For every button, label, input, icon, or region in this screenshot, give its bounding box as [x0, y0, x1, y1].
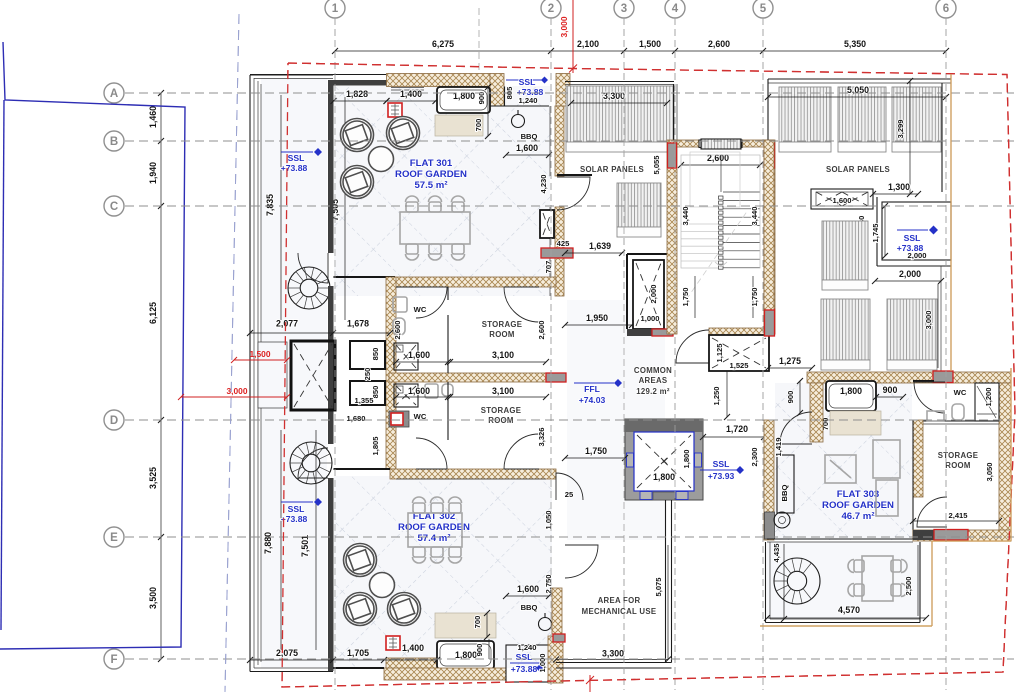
- svg-text:3,000: 3,000: [559, 16, 569, 37]
- svg-text:2,500: 2,500: [904, 576, 913, 595]
- svg-text:FLAT 303: FLAT 303: [837, 489, 879, 500]
- svg-text:+73.88: +73.88: [281, 514, 308, 524]
- svg-text:ROOF GARDEN: ROOF GARDEN: [398, 522, 470, 533]
- svg-text:2,077: 2,077: [276, 319, 298, 329]
- svg-text:1,940: 1,940: [148, 162, 158, 184]
- svg-text:SSL: SSL: [904, 233, 921, 243]
- svg-text:1,678: 1,678: [347, 319, 369, 329]
- svg-text:1,000: 1,000: [538, 653, 547, 672]
- svg-text:46.7 m²: 46.7 m²: [841, 511, 874, 522]
- svg-text:2,000: 2,000: [907, 251, 926, 260]
- svg-text:SSL: SSL: [519, 77, 536, 87]
- svg-text:425: 425: [557, 239, 570, 248]
- svg-text:850: 850: [371, 348, 380, 361]
- svg-text:D: D: [110, 415, 118, 427]
- svg-text:1,828: 1,828: [346, 89, 368, 99]
- svg-text:WC: WC: [954, 388, 967, 397]
- svg-text:1: 1: [332, 3, 339, 15]
- svg-text:707: 707: [544, 261, 553, 274]
- svg-text:BBQ: BBQ: [780, 484, 789, 501]
- svg-text:SOLAR PANELS: SOLAR PANELS: [826, 165, 890, 174]
- svg-text:COMMON: COMMON: [634, 366, 672, 375]
- svg-text:+73.88: +73.88: [511, 664, 538, 674]
- svg-text:1,400: 1,400: [400, 89, 422, 99]
- svg-text:2,075: 2,075: [276, 648, 298, 658]
- svg-text:1,419: 1,419: [774, 437, 783, 456]
- svg-text:3,000: 3,000: [924, 310, 933, 329]
- svg-text:1,750: 1,750: [681, 287, 690, 306]
- svg-text:6,125: 6,125: [148, 302, 158, 324]
- svg-text:AREA FOR: AREA FOR: [598, 596, 641, 605]
- svg-text:ROOF GARDEN: ROOF GARDEN: [395, 169, 467, 180]
- svg-text:5,075: 5,075: [654, 577, 663, 597]
- svg-text:3,050: 3,050: [985, 462, 994, 481]
- svg-text:5: 5: [760, 3, 767, 15]
- svg-text:3,500: 3,500: [148, 587, 158, 609]
- svg-text:SSL: SSL: [713, 459, 730, 469]
- svg-text:57.5 m²: 57.5 m²: [414, 180, 447, 191]
- svg-text:1,400: 1,400: [402, 643, 424, 653]
- svg-text:FFL: FFL: [584, 384, 600, 394]
- svg-text:ROOF GARDEN: ROOF GARDEN: [822, 500, 894, 511]
- svg-text:900: 900: [475, 644, 484, 657]
- svg-text:E: E: [110, 532, 118, 544]
- svg-text:1,250: 1,250: [712, 386, 721, 405]
- svg-text:7,501: 7,501: [300, 535, 310, 557]
- svg-text:3,326: 3,326: [537, 427, 546, 446]
- svg-text:ROOM: ROOM: [489, 330, 514, 339]
- svg-text:3,000: 3,000: [227, 386, 248, 396]
- svg-text:3,440: 3,440: [750, 206, 759, 225]
- svg-text:1,800: 1,800: [653, 472, 675, 482]
- svg-text:1,950: 1,950: [586, 313, 608, 323]
- svg-text:1,705: 1,705: [347, 648, 369, 658]
- svg-text:4,230: 4,230: [539, 174, 548, 193]
- svg-text:2,600: 2,600: [393, 320, 402, 339]
- svg-text:129.2 m²: 129.2 m²: [636, 387, 670, 396]
- svg-text:2,415: 2,415: [948, 511, 968, 520]
- svg-text:1,600: 1,600: [408, 350, 430, 360]
- svg-text:1,240: 1,240: [518, 96, 537, 105]
- svg-text:1,300: 1,300: [888, 182, 910, 192]
- svg-text:1,600: 1,600: [516, 143, 538, 153]
- svg-text:1,750: 1,750: [750, 287, 759, 306]
- svg-text:3,299: 3,299: [896, 119, 905, 138]
- svg-text:57.4 m²: 57.4 m²: [417, 533, 450, 544]
- svg-text:4: 4: [672, 3, 679, 15]
- svg-text:STORAGE: STORAGE: [481, 406, 522, 415]
- svg-text:3,100: 3,100: [492, 386, 514, 396]
- svg-text:SSL: SSL: [288, 153, 305, 163]
- svg-text:7,835: 7,835: [265, 194, 275, 216]
- svg-text:C: C: [110, 201, 118, 213]
- svg-text:1,240: 1,240: [517, 643, 536, 652]
- svg-text:AREAS: AREAS: [639, 376, 668, 385]
- svg-text:STORAGE: STORAGE: [938, 451, 979, 460]
- svg-text:1,355: 1,355: [354, 396, 374, 405]
- svg-text:2: 2: [548, 3, 554, 15]
- svg-text:900: 900: [883, 385, 898, 395]
- svg-text:F: F: [110, 654, 117, 666]
- svg-text:1,800: 1,800: [840, 386, 862, 396]
- svg-text:1,000: 1,000: [640, 314, 659, 323]
- svg-text:1,720: 1,720: [726, 424, 748, 434]
- svg-text:5,350: 5,350: [844, 39, 866, 49]
- svg-text:1,600: 1,600: [408, 386, 430, 396]
- svg-text:MECHANICAL USE: MECHANICAL USE: [582, 607, 657, 616]
- svg-text:1,639: 1,639: [589, 241, 611, 251]
- svg-text:2,000: 2,000: [899, 269, 921, 279]
- svg-text:A: A: [110, 88, 118, 100]
- svg-text:900: 900: [786, 391, 795, 404]
- svg-text:1,500: 1,500: [639, 39, 661, 49]
- svg-text:ROOM: ROOM: [945, 461, 970, 470]
- svg-text:3,525: 3,525: [148, 467, 158, 489]
- svg-text:1,750: 1,750: [585, 446, 607, 456]
- svg-text:1,525: 1,525: [729, 361, 749, 370]
- svg-text:+74.03: +74.03: [579, 395, 606, 405]
- svg-text:1,500: 1,500: [250, 349, 271, 359]
- svg-text:3: 3: [621, 3, 627, 15]
- svg-text:1,125: 1,125: [715, 343, 724, 363]
- svg-text:SSL: SSL: [516, 652, 533, 662]
- svg-text:2,600: 2,600: [707, 153, 729, 163]
- svg-text:2,600: 2,600: [708, 39, 730, 49]
- svg-text:2,300: 2,300: [750, 447, 759, 466]
- svg-text:SOLAR PANELS: SOLAR PANELS: [580, 165, 644, 174]
- svg-text:6: 6: [943, 3, 949, 15]
- svg-text:1,805: 1,805: [371, 436, 380, 456]
- svg-text:4,570: 4,570: [838, 605, 860, 615]
- svg-text:1,275: 1,275: [779, 356, 801, 366]
- svg-text:3,300: 3,300: [602, 649, 624, 659]
- svg-text:2,100: 2,100: [577, 39, 599, 49]
- svg-text:900: 900: [477, 92, 486, 105]
- svg-text:BBQ: BBQ: [521, 603, 538, 612]
- svg-text:1,050: 1,050: [544, 510, 553, 529]
- svg-text:BBQ: BBQ: [521, 132, 538, 141]
- svg-text:1,600: 1,600: [517, 584, 539, 594]
- svg-text:5,055: 5,055: [652, 155, 661, 175]
- svg-text:6,275: 6,275: [432, 39, 454, 49]
- svg-text:250: 250: [363, 368, 372, 381]
- svg-text:B: B: [110, 136, 118, 148]
- svg-text:1,460: 1,460: [148, 106, 158, 128]
- svg-text:1,680: 1,680: [346, 414, 365, 423]
- svg-text:2,600: 2,600: [537, 320, 546, 339]
- svg-text:1,600: 1,600: [832, 196, 851, 205]
- svg-text:+73.88: +73.88: [281, 163, 308, 173]
- svg-text:4,435: 4,435: [772, 543, 781, 563]
- svg-text:1,200: 1,200: [984, 387, 993, 406]
- svg-text:1,800: 1,800: [682, 449, 691, 468]
- svg-text:700: 700: [473, 616, 482, 629]
- svg-text:2,000: 2,000: [649, 284, 658, 303]
- svg-text:1,745: 1,745: [871, 223, 880, 243]
- svg-text:7,880: 7,880: [263, 532, 273, 554]
- svg-text:STORAGE: STORAGE: [482, 320, 523, 329]
- svg-text:+73.93: +73.93: [708, 471, 735, 481]
- svg-text:SSL: SSL: [288, 504, 305, 514]
- svg-text:FLAT 301: FLAT 301: [410, 158, 453, 169]
- svg-text:3,100: 3,100: [492, 350, 514, 360]
- svg-text:WC: WC: [414, 305, 427, 314]
- svg-text:700: 700: [474, 119, 483, 132]
- svg-text:3,440: 3,440: [681, 206, 690, 225]
- svg-text:25: 25: [565, 490, 574, 499]
